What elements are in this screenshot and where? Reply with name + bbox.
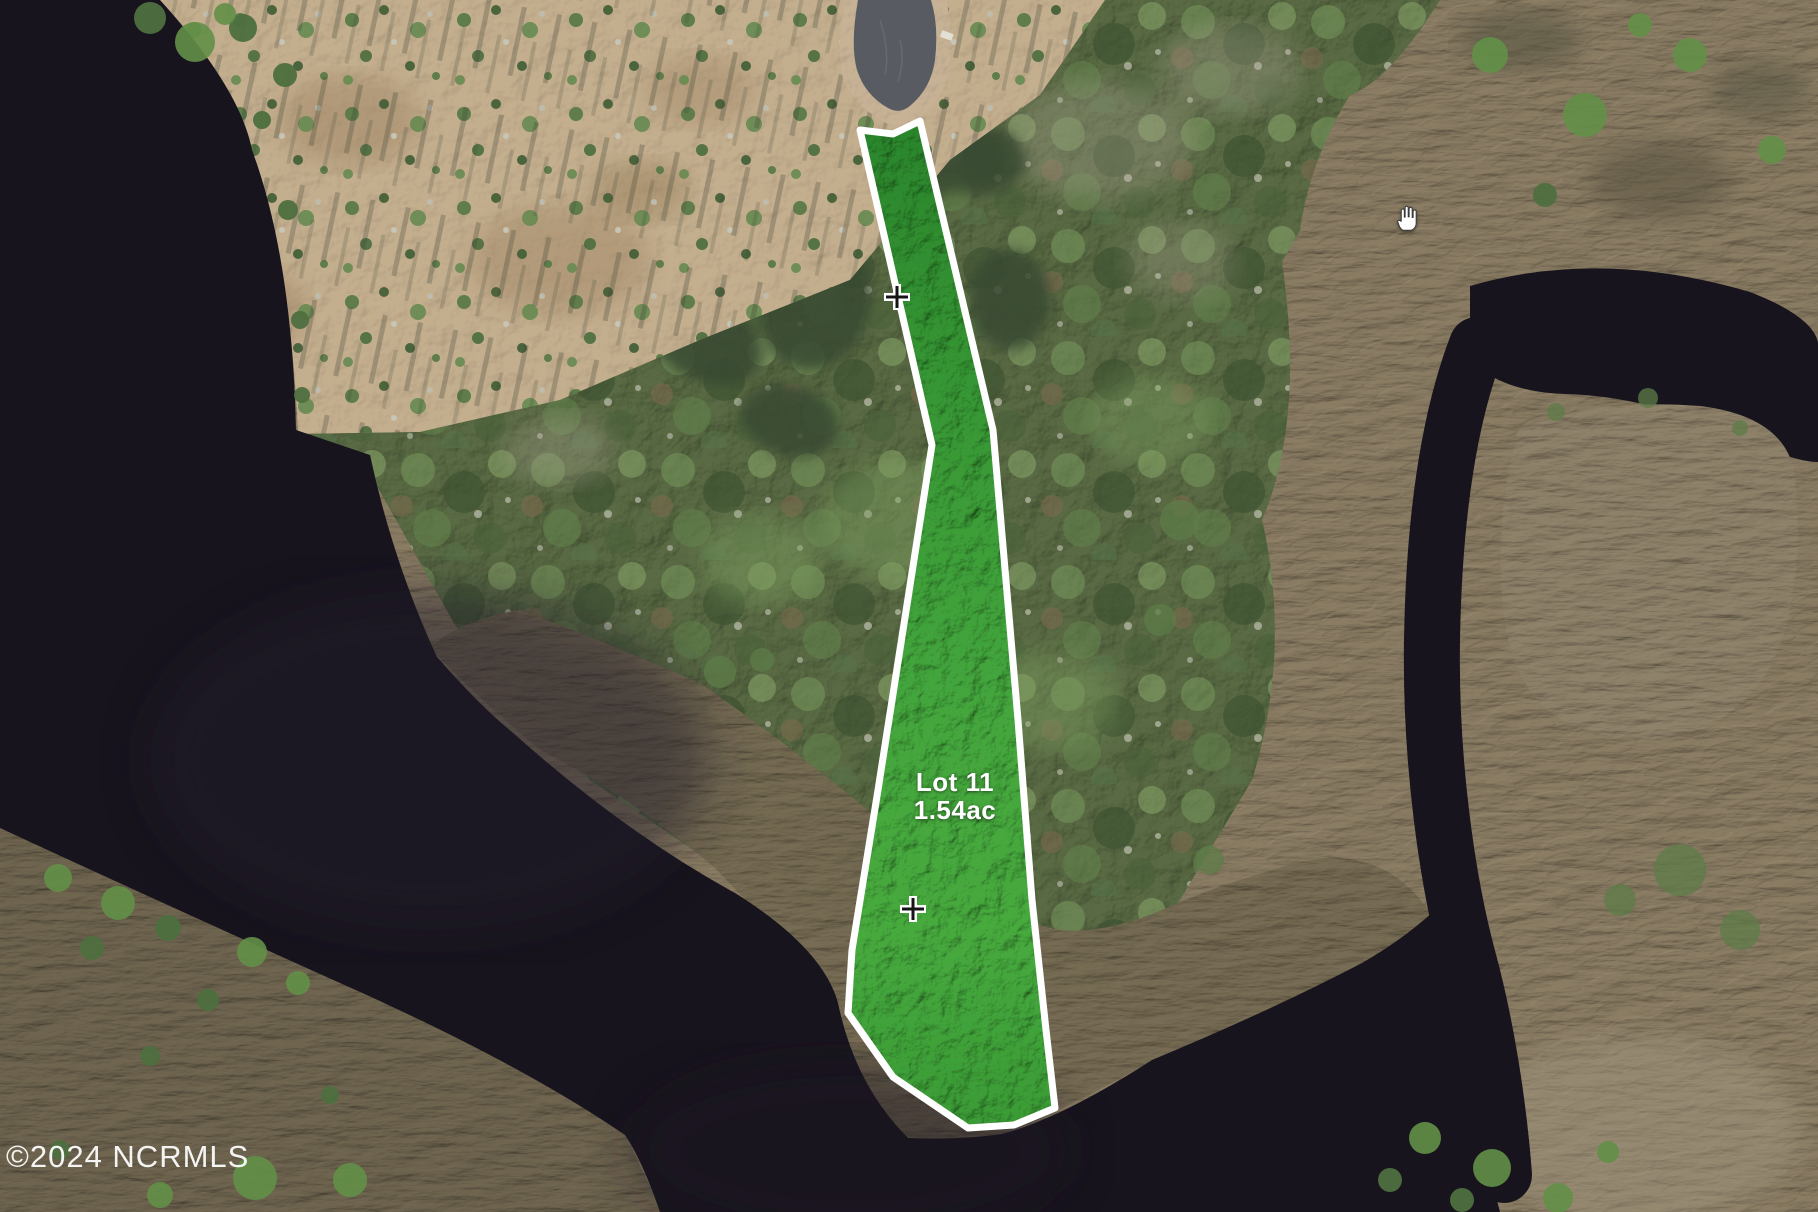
hand-cursor-icon: [1396, 204, 1418, 232]
aerial-photo-viewer: Lot 11 1.54ac ©2024 NCRMLS: [0, 0, 1818, 1212]
mls-watermark: ©2024 NCRMLS: [6, 1139, 249, 1175]
lot-label: Lot 11 1.54ac: [884, 768, 1026, 824]
marsh-island: [1501, 404, 1798, 738]
lot-label-name: Lot 11: [884, 768, 1026, 796]
aerial-imagery: [0, 0, 1818, 1212]
lot-label-acreage: 1.54ac: [884, 796, 1026, 824]
